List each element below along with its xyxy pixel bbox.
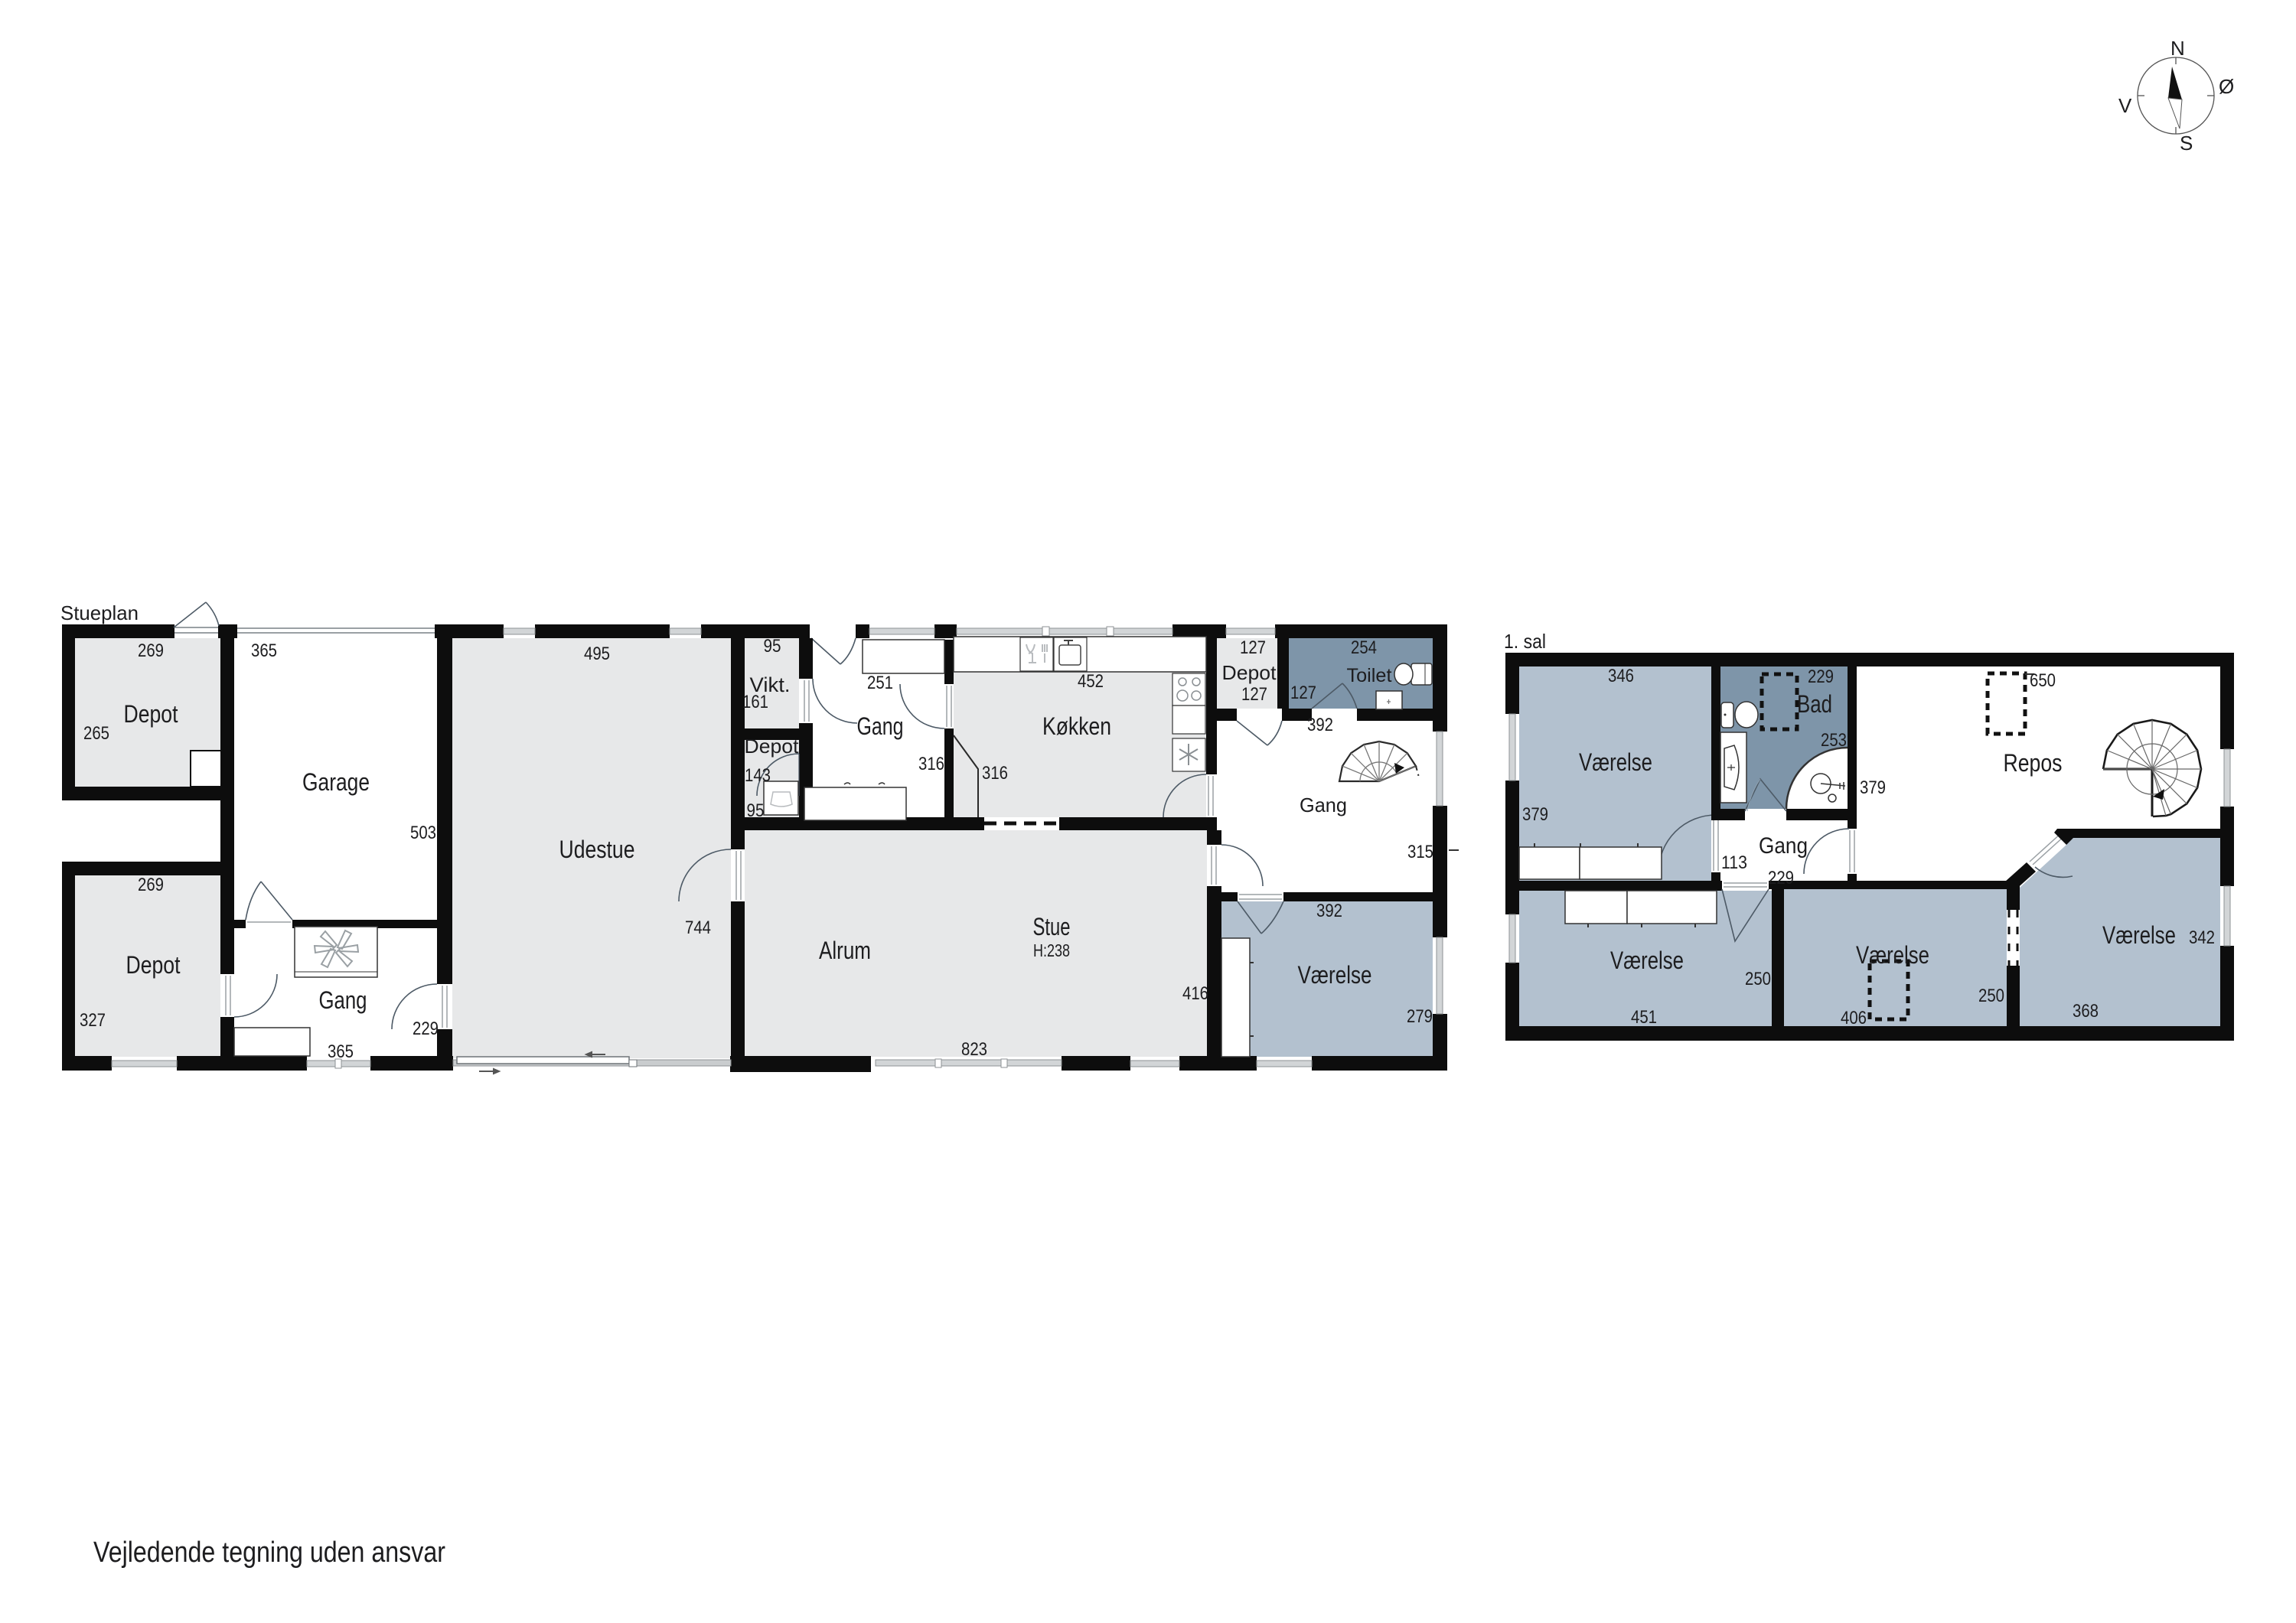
svg-text:279: 279 [1407, 1006, 1433, 1027]
svg-text:N: N [2170, 37, 2185, 60]
svg-text:Værelse: Værelse [1610, 947, 1684, 974]
svg-text:379: 379 [1522, 804, 1548, 825]
svg-text:379: 379 [1860, 777, 1886, 798]
svg-text:823: 823 [961, 1039, 987, 1060]
svg-text:269: 269 [138, 640, 164, 661]
svg-text:Depot: Depot [1222, 661, 1277, 684]
svg-text:Gang: Gang [1300, 794, 1347, 816]
svg-text:127: 127 [1241, 684, 1267, 705]
svg-text:Bad: Bad [1797, 690, 1832, 718]
svg-text:113: 113 [1721, 852, 1747, 873]
svg-text:650: 650 [2030, 670, 2056, 691]
svg-text:250: 250 [1978, 986, 2004, 1006]
svg-text:Garage: Garage [302, 768, 370, 796]
svg-text:Værelse: Værelse [2102, 921, 2176, 949]
svg-text:Stueplan: Stueplan [60, 601, 139, 624]
svg-text:254: 254 [1351, 637, 1377, 658]
svg-text:Repos: Repos [2004, 749, 2063, 777]
svg-text:368: 368 [2073, 1001, 2099, 1022]
svg-text:Gang: Gang [1759, 833, 1808, 859]
svg-text:327: 327 [80, 1010, 106, 1031]
svg-text:V: V [2118, 94, 2132, 117]
svg-text:1. sal: 1. sal [1504, 630, 1546, 653]
svg-text:253: 253 [1821, 730, 1847, 751]
svg-text:Depot: Depot [745, 735, 800, 758]
svg-text:H:238: H:238 [1033, 940, 1070, 960]
svg-text:Værelse: Værelse [1856, 941, 1929, 969]
svg-text:316: 316 [982, 763, 1008, 784]
svg-text:Depot: Depot [126, 951, 181, 979]
svg-text:Udestue: Udestue [559, 836, 635, 863]
svg-text:Værelse: Værelse [1298, 961, 1372, 989]
svg-text:Køkken: Køkken [1042, 712, 1111, 740]
svg-text:Gang: Gang [857, 712, 904, 740]
svg-text:503: 503 [410, 823, 436, 843]
svg-text:229: 229 [1768, 868, 1794, 888]
svg-text:229: 229 [413, 1018, 439, 1039]
svg-text:392: 392 [1307, 715, 1333, 735]
svg-text:127: 127 [1240, 637, 1266, 658]
svg-text:365: 365 [328, 1041, 354, 1062]
svg-text:Depot: Depot [124, 700, 178, 728]
svg-text:Vejledende tegning uden ansvar: Vejledende tegning uden ansvar [93, 1537, 445, 1569]
svg-text:744: 744 [685, 917, 711, 938]
svg-text:S: S [2180, 132, 2193, 155]
svg-text:95: 95 [747, 800, 765, 821]
svg-text:342: 342 [2189, 927, 2215, 948]
svg-text:Stue: Stue [1033, 913, 1071, 940]
svg-text:269: 269 [138, 875, 164, 895]
svg-text:265: 265 [83, 723, 109, 744]
svg-text:229: 229 [1808, 666, 1834, 687]
svg-text:Toilet: Toilet [1347, 665, 1392, 686]
svg-text:452: 452 [1078, 671, 1104, 692]
svg-text:346: 346 [1608, 666, 1634, 686]
svg-text:315: 315 [1407, 842, 1433, 862]
svg-text:127: 127 [1290, 683, 1316, 703]
svg-text:316: 316 [918, 754, 944, 774]
svg-text:365: 365 [251, 640, 277, 661]
svg-text:95: 95 [764, 636, 781, 657]
svg-text:251: 251 [867, 673, 893, 693]
svg-text:Værelse: Værelse [1579, 748, 1652, 776]
svg-text:406: 406 [1841, 1008, 1867, 1028]
svg-text:Gang: Gang [319, 986, 367, 1014]
svg-text:495: 495 [584, 644, 610, 664]
svg-text:392: 392 [1316, 901, 1342, 921]
svg-text:250: 250 [1745, 969, 1771, 989]
svg-text:143: 143 [745, 765, 771, 786]
svg-text:Ø: Ø [2219, 75, 2234, 98]
svg-text:161: 161 [742, 692, 768, 712]
svg-text:451: 451 [1631, 1007, 1657, 1028]
svg-text:Alrum: Alrum [819, 937, 871, 964]
svg-text:416: 416 [1182, 983, 1208, 1004]
